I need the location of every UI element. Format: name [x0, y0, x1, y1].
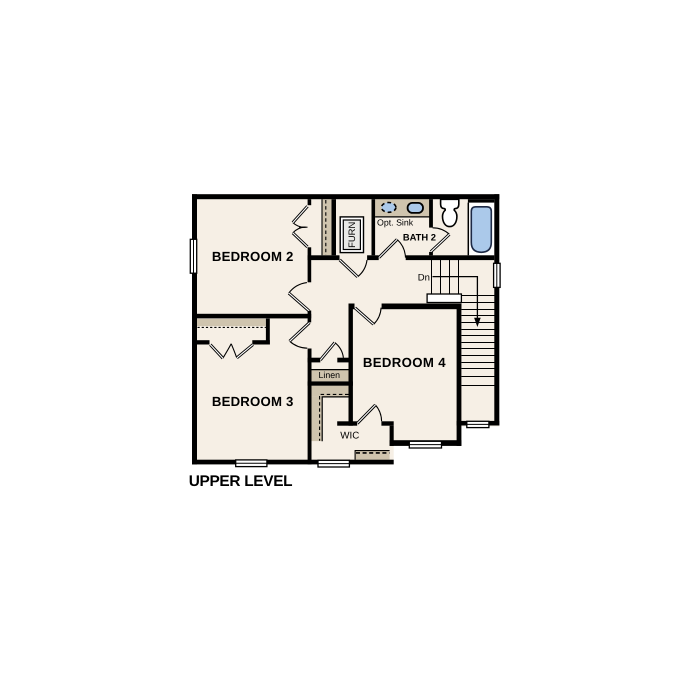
svg-text:BEDROOM 2: BEDROOM 2: [212, 249, 294, 264]
svg-text:WIC: WIC: [340, 431, 359, 442]
svg-text:Linen: Linen: [319, 370, 341, 380]
svg-text:BATH 2: BATH 2: [403, 232, 436, 243]
svg-text:BEDROOM 3: BEDROOM 3: [212, 394, 294, 409]
svg-text:BEDROOM 4: BEDROOM 4: [363, 355, 446, 370]
svg-text:Dn: Dn: [418, 272, 430, 283]
svg-text:UPPER LEVEL: UPPER LEVEL: [189, 473, 293, 490]
svg-text:Opt. Sink: Opt. Sink: [377, 217, 414, 227]
svg-text:FURN: FURN: [346, 222, 357, 248]
